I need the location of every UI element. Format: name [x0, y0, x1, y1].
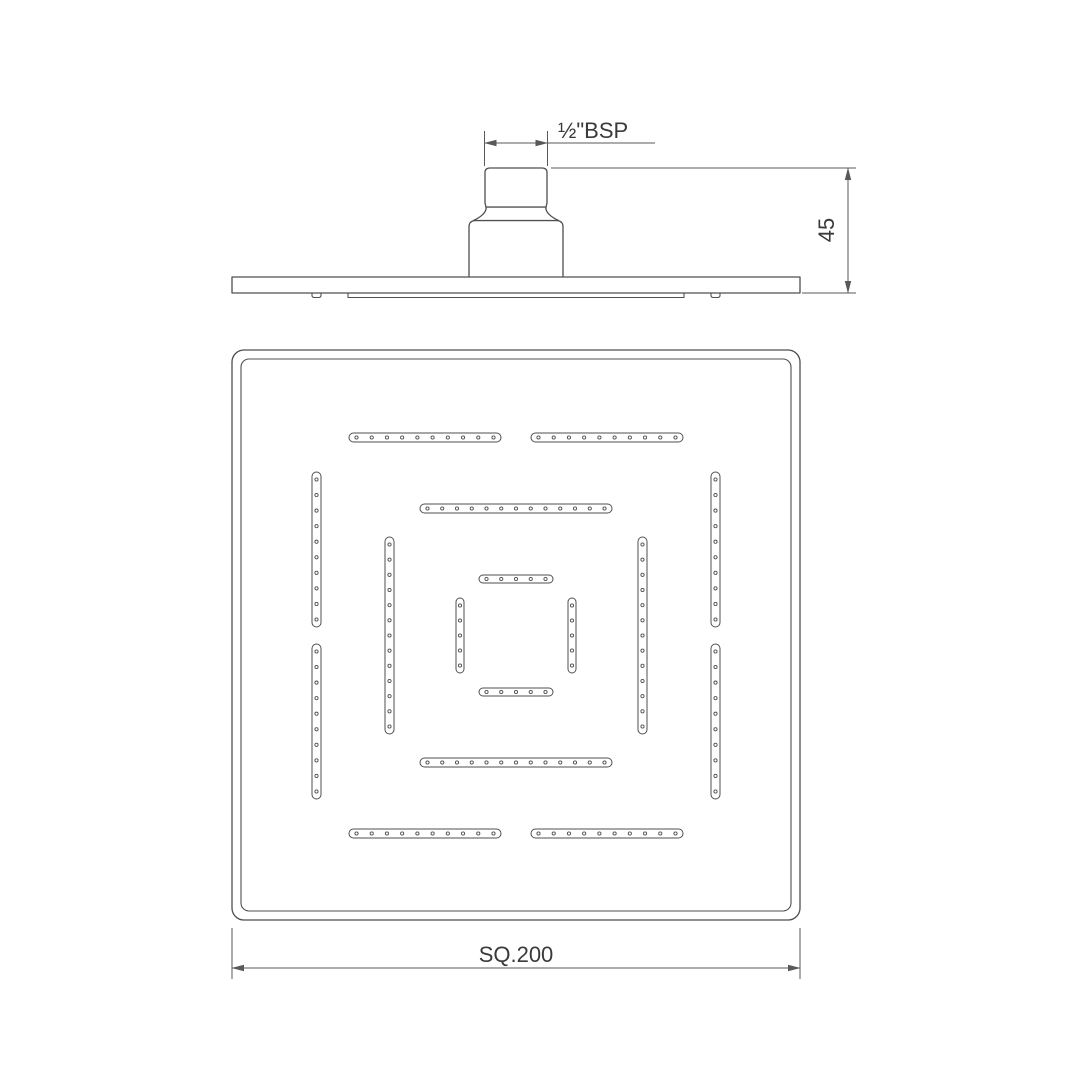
nozzle-strip-outer-left-top — [312, 472, 321, 627]
nozzle-strip-inner-right — [568, 598, 576, 673]
nozzle-hole — [500, 507, 503, 510]
dim-size: SQ.200 — [232, 928, 800, 979]
nozzle-hole — [714, 743, 717, 746]
nozzle-hole — [641, 604, 644, 607]
nozzle-hole — [583, 832, 586, 835]
nozzle-hole — [385, 832, 388, 835]
nozzle-hole — [431, 436, 434, 439]
nozzle-hole — [714, 571, 717, 574]
nozzle-hole — [544, 507, 547, 510]
nozzle-strip-outer-top-right — [531, 433, 683, 442]
nozzle-strip-middle-bottom — [420, 758, 612, 767]
nozzle-hole — [388, 619, 391, 622]
nozzle-hole — [529, 507, 532, 510]
nozzle-hole — [426, 761, 429, 764]
nozzle-hole — [559, 507, 562, 510]
nozzle-hole — [458, 619, 461, 622]
nozzle-hole — [455, 761, 458, 764]
nozzle-hole — [641, 634, 644, 637]
nozzle-hole — [570, 604, 573, 607]
nozzle-hole — [588, 507, 591, 510]
nozzle-hole — [388, 558, 391, 561]
nozzle-hole — [315, 665, 318, 668]
faceplate-side — [232, 277, 800, 293]
nozzle-hole — [714, 525, 717, 528]
nozzle-hole — [714, 774, 717, 777]
nozzle-hole — [714, 759, 717, 762]
nozzle-hole — [355, 832, 358, 835]
nozzle-hole — [573, 507, 576, 510]
nozzle-hole — [674, 436, 677, 439]
nozzle-hole — [385, 436, 388, 439]
nozzle-hole — [641, 619, 644, 622]
nozzle-strip-outer-left-bottom — [312, 644, 321, 799]
nozzle-hole — [426, 507, 429, 510]
nozzle-hole — [461, 436, 464, 439]
nozzle-hole — [659, 436, 662, 439]
nozzle-boss-right — [711, 293, 720, 298]
nozzle-hole — [613, 832, 616, 835]
size-label: SQ.200 — [479, 942, 554, 967]
nozzle-hole — [641, 679, 644, 682]
nozzle-hole — [315, 556, 318, 559]
side-view: ½"BSP 45 — [232, 118, 856, 298]
nozzle-hole — [641, 543, 644, 546]
faceplate-outline-outer — [232, 350, 800, 920]
nozzle-hole — [370, 436, 373, 439]
nozzle-hole — [492, 832, 495, 835]
nozzle-hole — [659, 832, 662, 835]
nozzle-hole — [315, 540, 318, 543]
nozzle-hole — [401, 832, 404, 835]
nozzle-hole — [431, 832, 434, 835]
nozzle-strip-outer-right-top — [711, 472, 720, 627]
nozzle-hole — [714, 712, 717, 715]
nozzle-strip-outer-right-bottom — [711, 644, 720, 799]
nozzle-hole — [641, 710, 644, 713]
nozzle-hole — [641, 649, 644, 652]
technical-drawing-page: ½"BSP 45 SQ.200 — [0, 0, 1080, 1080]
nozzle-hole — [559, 761, 562, 764]
nozzle-hole — [500, 761, 503, 764]
nozzle-hole — [315, 774, 318, 777]
nozzle-hole — [552, 436, 555, 439]
nozzle-hole — [388, 604, 391, 607]
nozzle-hole — [388, 634, 391, 637]
nozzle-hole — [537, 436, 540, 439]
nozzle-hole — [598, 436, 601, 439]
nozzle-hole — [315, 478, 318, 481]
nozzle-hole — [485, 507, 488, 510]
nozzle-hole — [570, 619, 573, 622]
nozzle-hole — [641, 725, 644, 728]
nozzle-hole — [529, 577, 532, 580]
nozzle-hole — [315, 525, 318, 528]
nozzle-hole — [446, 832, 449, 835]
nozzle-hole — [570, 634, 573, 637]
nozzle-hole — [470, 507, 473, 510]
nozzle-hole — [529, 761, 532, 764]
dim-height: 45 — [551, 168, 856, 293]
nozzle-hole — [315, 790, 318, 793]
nozzle-hole — [643, 832, 646, 835]
nozzle-hole — [714, 650, 717, 653]
nozzle-hole — [477, 436, 480, 439]
nozzle-hole — [388, 573, 391, 576]
nozzle-hole — [500, 577, 503, 580]
nozzle-hole — [570, 664, 573, 667]
nozzle-hole — [315, 571, 318, 574]
nozzle-hole — [514, 577, 517, 580]
nozzle-hole — [461, 832, 464, 835]
nozzle-hole — [714, 728, 717, 731]
nozzle-hole — [641, 664, 644, 667]
nozzle-hole — [485, 577, 488, 580]
nozzle-hole — [370, 832, 373, 835]
nozzle-hole — [315, 759, 318, 762]
nozzle-hole — [388, 710, 391, 713]
dim-thread-size: ½"BSP — [485, 118, 656, 166]
nozzle-hole — [315, 618, 318, 621]
nozzle-hole — [485, 690, 488, 693]
nozzle-hole — [714, 540, 717, 543]
nozzle-hole — [441, 761, 444, 764]
nozzle-hole — [544, 577, 547, 580]
nozzle-hole — [583, 436, 586, 439]
plan-view: SQ.200 — [232, 350, 800, 979]
nozzle-hole — [500, 690, 503, 693]
nozzle-hole — [416, 436, 419, 439]
nozzle-hole — [714, 790, 717, 793]
nozzle-hole — [714, 618, 717, 621]
nozzle-hole — [514, 690, 517, 693]
nozzle-strip-middle-right — [638, 537, 647, 734]
nozzle-hole — [315, 493, 318, 496]
nozzle-hole — [603, 761, 606, 764]
nozzle-hole — [674, 832, 677, 835]
nozzle-hole — [628, 436, 631, 439]
nozzle-strip-inner-left — [456, 598, 464, 673]
nozzle-hole — [628, 832, 631, 835]
nozzle-hole — [570, 649, 573, 652]
nozzle-hole — [458, 649, 461, 652]
nozzle-hole — [315, 587, 318, 590]
nozzle-hole — [714, 697, 717, 700]
mount-base — [469, 221, 563, 278]
nozzle-boss-left — [312, 293, 321, 298]
nozzle-hole — [416, 832, 419, 835]
nozzle-hole — [401, 436, 404, 439]
neck-flare — [474, 207, 559, 221]
nozzle-strip-outer-bottom-right — [531, 829, 683, 838]
nozzle-hole — [470, 761, 473, 764]
nozzle-hole — [485, 761, 488, 764]
nozzle-hole — [613, 436, 616, 439]
nozzle-hole — [588, 761, 591, 764]
nozzle-hole — [315, 712, 318, 715]
nozzle-strip-inner-top — [479, 575, 553, 583]
nozzle-hole — [441, 507, 444, 510]
nozzle-hole — [315, 697, 318, 700]
nozzle-hole — [355, 436, 358, 439]
nozzle-hole — [641, 573, 644, 576]
nozzle-hole — [388, 664, 391, 667]
nozzle-hole — [388, 649, 391, 652]
height-label: 45 — [814, 218, 839, 242]
nozzle-hole — [714, 681, 717, 684]
nozzle-hole — [537, 832, 540, 835]
nozzle-strip-inner-bottom — [479, 688, 553, 696]
nozzle-hole — [458, 604, 461, 607]
nozzle-hole — [315, 743, 318, 746]
nozzle-hole — [529, 690, 532, 693]
nozzle-hole — [458, 664, 461, 667]
nozzle-hole — [641, 558, 644, 561]
nozzle-hole — [388, 695, 391, 698]
nozzle-hole — [567, 832, 570, 835]
nozzle-hole — [567, 436, 570, 439]
nozzle-hole — [315, 602, 318, 605]
nozzle-hole — [388, 725, 391, 728]
nozzle-hole — [514, 761, 517, 764]
nozzle-hole — [446, 436, 449, 439]
nozzle-hole — [573, 761, 576, 764]
thread-size-label: ½"BSP — [558, 118, 628, 143]
nozzle-hole — [714, 556, 717, 559]
nozzle-hole — [714, 478, 717, 481]
nozzle-hole — [455, 507, 458, 510]
nozzle-hole — [315, 681, 318, 684]
nozzle-hole — [544, 761, 547, 764]
nozzle-strip-middle-top — [420, 504, 612, 513]
nozzle-hole — [388, 679, 391, 682]
nozzle-hole — [714, 493, 717, 496]
nozzle-strip-outer-bottom-left — [349, 829, 501, 838]
plate-lip — [348, 293, 684, 298]
inlet-nut — [485, 168, 547, 207]
nozzle-hole — [552, 832, 555, 835]
nozzle-hole — [492, 436, 495, 439]
nozzle-hole — [315, 650, 318, 653]
nozzle-hole — [603, 507, 606, 510]
nozzle-hole — [714, 665, 717, 668]
nozzle-hole — [714, 509, 717, 512]
nozzle-hole — [458, 634, 461, 637]
nozzle-hole — [388, 543, 391, 546]
nozzle-hole — [514, 507, 517, 510]
nozzle-hole — [714, 602, 717, 605]
nozzle-hole — [641, 695, 644, 698]
nozzle-hole — [315, 509, 318, 512]
nozzle-hole — [544, 690, 547, 693]
nozzle-hole — [315, 728, 318, 731]
nozzle-strip-outer-top-left — [349, 433, 501, 442]
nozzle-hole — [388, 588, 391, 591]
shower-head-drawing: ½"BSP 45 SQ.200 — [0, 0, 1080, 1080]
nozzle-hole — [598, 832, 601, 835]
nozzle-hole — [477, 832, 480, 835]
nozzle-hole — [641, 588, 644, 591]
nozzle-strip-middle-left — [385, 537, 394, 734]
nozzle-hole — [643, 436, 646, 439]
nozzle-hole — [714, 587, 717, 590]
